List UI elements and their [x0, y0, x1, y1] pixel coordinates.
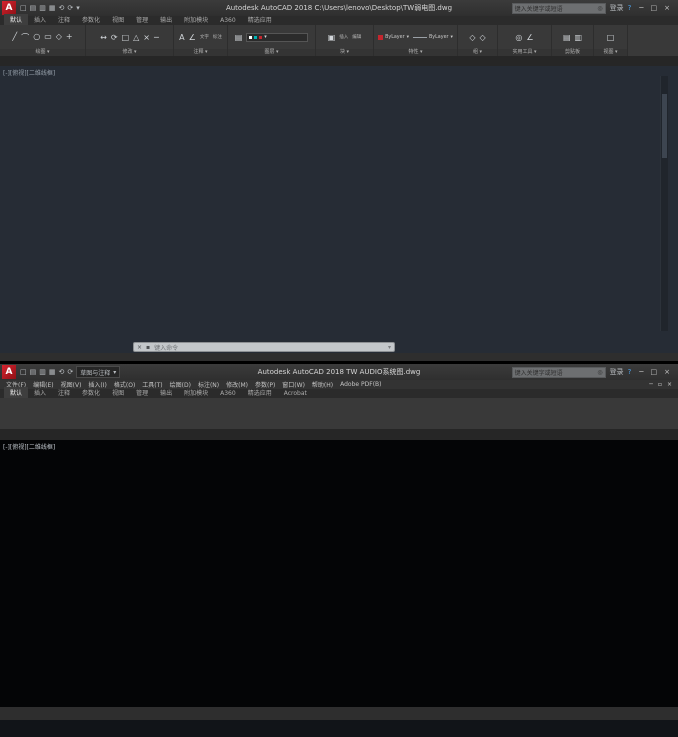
property-dropdown[interactable]: ByLayer▾: [378, 35, 409, 40]
tool-icon[interactable]: ◎: [515, 33, 522, 42]
desktop: { "colors":{"accent_red":"#c4262e","wire…: [0, 0, 678, 737]
help-icon[interactable]: ?: [628, 4, 632, 12]
panel-label[interactable]: 绘图 ▾: [0, 49, 85, 56]
property-dropdown[interactable]: ByLayer▾: [413, 35, 453, 40]
tool-icon[interactable]: ▤: [563, 33, 571, 42]
ribbon-tab-注释[interactable]: 注释: [52, 387, 76, 398]
plot-icon[interactable]: ▦: [49, 4, 56, 12]
ribbon-panel-组: ◇◇组 ▾: [458, 25, 498, 56]
panel-label[interactable]: 图层 ▾: [228, 49, 315, 56]
panel-label[interactable]: 注释 ▾: [174, 49, 227, 56]
quick-access-toolbar: □▤▥▦⟲⟳▾: [20, 4, 80, 12]
ribbon-tab-管理[interactable]: 管理: [130, 14, 154, 25]
window-title: Autodesk AutoCAD 2018 C:\Users\lenovo\De…: [226, 3, 452, 13]
model-space-canvas[interactable]: [0, 66, 678, 353]
tool-icon[interactable]: ∠: [189, 33, 196, 42]
viewport-controls[interactable]: [-][俯视][二维线框]: [3, 442, 55, 451]
panel-tools: ◇◇: [458, 25, 497, 49]
panel-tools: ╱⌒○▭◇+: [0, 25, 85, 49]
search-icon[interactable]: ◎: [597, 369, 602, 376]
doc-restore-button[interactable]: ▫: [658, 381, 662, 388]
panel-tools: ◎∠: [498, 25, 551, 49]
search-input[interactable]: 键入关键字或短语 ◎: [512, 3, 606, 14]
menu-item[interactable]: Adobe PDF(B): [340, 381, 381, 388]
tool-icon[interactable]: ▣: [328, 33, 336, 42]
ribbon-tab-管理[interactable]: 管理: [130, 387, 154, 398]
window-title: Autodesk AutoCAD 2018 TW AUDIO系统图.dwg: [258, 367, 421, 377]
help-icon[interactable]: ?: [628, 368, 632, 376]
panel-label[interactable]: 修改 ▾: [86, 49, 173, 56]
color-swatch: [378, 35, 383, 40]
panel-tools: ▣插入编辑: [316, 25, 373, 49]
doc-close-button[interactable]: ×: [667, 381, 672, 388]
search-input[interactable]: 键入关键字或短语 ◎: [512, 367, 606, 378]
doc-minimize-button[interactable]: ─: [649, 381, 653, 388]
command-customize-icon[interactable]: ▪: [146, 344, 150, 351]
infocenter: 键入关键字或短语 ◎ 登录 ? ─□×: [512, 3, 678, 14]
model-space-canvas[interactable]: [0, 440, 678, 707]
ribbon-tab-插入[interactable]: 插入: [28, 14, 52, 25]
undo-icon[interactable]: ⟲: [59, 4, 65, 12]
panel-tools: A∠文字标注: [174, 25, 227, 49]
chevron-down-icon: ▾: [264, 34, 267, 40]
taskbar-strip: [0, 720, 678, 737]
tool-icon[interactable]: ∠: [526, 33, 533, 42]
ribbon-panel-视图: □视图 ▾: [594, 25, 628, 56]
tool-icon[interactable]: +: [66, 32, 73, 43]
command-line[interactable]: × ▪ 键入命令 ▾: [133, 342, 395, 352]
maximize-button[interactable]: □: [651, 368, 658, 376]
document-window-buttons: ─▫×: [649, 381, 678, 388]
tool-icon[interactable]: ×: [143, 33, 150, 42]
ribbon-tab-参数化[interactable]: 参数化: [76, 14, 106, 25]
panel-label[interactable]: 剪贴板: [552, 49, 593, 56]
ribbon-panel-注释: A∠文字标注注释 ▾: [174, 25, 228, 56]
new-file-icon[interactable]: □: [20, 4, 27, 12]
ribbon-panel-剪贴板: ▤▥剪贴板: [552, 25, 594, 56]
ribbon-tab-视图[interactable]: 视图: [106, 387, 130, 398]
chevron-down-icon: ▾: [407, 35, 409, 40]
ribbon-tab-bar: 默认插入注释参数化视图管理输出附加模块A360精选应用: [0, 16, 678, 25]
tool-icon[interactable]: ╱: [12, 32, 17, 43]
panel-label[interactable]: 视图 ▾: [594, 49, 627, 56]
panel-label[interactable]: 组 ▾: [458, 49, 497, 56]
ribbon-panel-图层: ▤▾图层 ▾: [228, 25, 316, 56]
command-close-icon[interactable]: ×: [137, 344, 142, 351]
tool-icon[interactable]: ⟳: [111, 33, 118, 42]
ribbon-tab-插入[interactable]: 插入: [28, 387, 52, 398]
autocad-window-bottom: A □▤▥▦⟲⟳ 草图与注释 ▾ Autodesk AutoCAD 2018 T…: [0, 361, 678, 737]
ribbon-tab-参数化[interactable]: 参数化: [76, 387, 106, 398]
open-file-icon[interactable]: ▤: [30, 4, 37, 12]
ribbon-tab-精选应用[interactable]: 精选应用: [242, 14, 278, 25]
ribbon-panel-绘图: ╱⌒○▭◇+绘图 ▾: [0, 25, 86, 56]
infocenter: 键入关键字或短语 ◎ 登录 ? ─□×: [512, 367, 678, 378]
save-icon[interactable]: ▥: [39, 368, 46, 376]
ribbon-tab-A360[interactable]: A360: [214, 389, 242, 398]
tool-icon[interactable]: ◇: [469, 33, 475, 42]
ribbon-tab-附加模块[interactable]: 附加模块: [178, 387, 214, 398]
layer-combo[interactable]: ▾: [246, 33, 308, 42]
signin-label[interactable]: 登录: [610, 3, 624, 13]
window-buttons: ─□×: [635, 368, 674, 376]
ribbon-tab-默认[interactable]: 默认: [4, 14, 28, 25]
layer-color-chip: [249, 36, 252, 39]
panel-label[interactable]: 实用工具 ▾: [498, 49, 551, 56]
drawing-area[interactable]: [-][俯视][二维线框] × ▪ 键入命令 ▾: [0, 66, 678, 353]
maximize-button[interactable]: □: [651, 4, 658, 12]
workspace-switcher[interactable]: 草图与注释 ▾: [76, 366, 120, 378]
ribbon-tab-输出[interactable]: 输出: [154, 387, 178, 398]
minimize-button[interactable]: ─: [639, 4, 643, 12]
tool-icon[interactable]: ↔: [100, 33, 107, 42]
menu-item[interactable]: 窗口(W): [282, 380, 305, 389]
search-icon[interactable]: ◎: [597, 5, 602, 12]
drawing-area[interactable]: [-][俯视][二维线框]: [0, 440, 678, 707]
ribbon-panel-实用工具: ◎∠实用工具 ▾: [498, 25, 552, 56]
undo-icon[interactable]: ⟲: [59, 368, 65, 376]
tool-icon[interactable]: ─: [154, 33, 159, 42]
redo-icon[interactable]: ⟳: [67, 4, 73, 12]
tool-icon[interactable]: ▥: [575, 33, 583, 42]
tool-label[interactable]: 编辑: [352, 34, 361, 40]
ribbon: [0, 398, 678, 429]
tool-icon[interactable]: ▤: [235, 33, 243, 42]
status-bar: [0, 353, 678, 361]
tool-label[interactable]: 文字: [200, 34, 209, 40]
ribbon-tab-精选应用[interactable]: 精选应用: [242, 387, 278, 398]
panel-tools: ▤▾: [228, 25, 315, 49]
vertical-scrollbar[interactable]: [660, 76, 668, 331]
tool-icon[interactable]: □: [607, 33, 615, 42]
close-button[interactable]: ×: [664, 368, 670, 376]
bylayer-value: ByLayer: [385, 35, 405, 40]
linetype-sample: [413, 37, 427, 38]
tool-icon[interactable]: ⌒: [21, 32, 29, 43]
new-file-icon[interactable]: □: [20, 368, 27, 376]
ribbon: ╱⌒○▭◇+绘图 ▾↔⟳□△×─修改 ▾A∠文字标注注释 ▾▤▾图层 ▾▣插入编…: [0, 25, 678, 56]
plot-icon[interactable]: ▦: [49, 368, 56, 376]
autocad-logo-icon[interactable]: A: [2, 1, 16, 15]
chevron-down-icon: ▾: [113, 369, 116, 376]
viewport-controls[interactable]: [-][俯视][二维线框]: [3, 68, 55, 77]
close-button[interactable]: ×: [664, 4, 670, 12]
file-tab-bar: [0, 56, 678, 66]
menu-item[interactable]: 帮助(H): [312, 380, 333, 389]
ribbon-tab-bar: 默认插入注释参数化视图管理输出附加模块A360精选应用Acrobat: [0, 389, 678, 398]
bylayer-value: ByLayer: [429, 35, 449, 40]
ribbon-panel-特性: ByLayer▾ByLayer▾特性 ▾: [374, 25, 458, 56]
titlebar[interactable]: A □▤▥▦⟲⟳ 草图与注释 ▾ Autodesk AutoCAD 2018 T…: [0, 364, 678, 380]
tool-label[interactable]: 标注: [213, 34, 222, 40]
command-history-icon[interactable]: ▾: [388, 344, 391, 351]
ribbon-tab-注释[interactable]: 注释: [52, 14, 76, 25]
tool-icon[interactable]: A: [179, 33, 184, 42]
ribbon-panel-块: ▣插入编辑块 ▾: [316, 25, 374, 56]
layer-color-chip: [259, 36, 262, 39]
tool-icon[interactable]: △: [133, 33, 139, 42]
autocad-logo-icon[interactable]: A: [2, 365, 16, 379]
ribbon-tab-Acrobat[interactable]: Acrobat: [278, 389, 313, 398]
save-icon[interactable]: ▥: [39, 4, 46, 12]
ribbon-panel-修改: ↔⟳□△×─修改 ▾: [86, 25, 174, 56]
ribbon-tab-输出[interactable]: 输出: [154, 14, 178, 25]
ribbon-tab-视图[interactable]: 视图: [106, 14, 130, 25]
quick-access-toolbar: □▤▥▦⟲⟳: [20, 368, 73, 376]
status-bar: [0, 707, 678, 720]
tool-label[interactable]: 插入: [339, 34, 348, 40]
panel-tools: □: [594, 25, 627, 49]
minimize-button[interactable]: ─: [639, 368, 643, 376]
ribbon-tab-默认[interactable]: 默认: [4, 387, 28, 398]
signin-label[interactable]: 登录: [610, 367, 624, 377]
tool-icon[interactable]: ◇: [56, 32, 62, 43]
panel-tools: ▤▥: [552, 25, 593, 49]
chevron-down-icon: ▾: [451, 35, 453, 40]
tool-icon[interactable]: □: [122, 33, 130, 42]
layer-color-chip: [254, 36, 257, 39]
ribbon-tab-附加模块[interactable]: 附加模块: [178, 14, 214, 25]
panel-label[interactable]: 块 ▾: [316, 49, 373, 56]
tool-icon[interactable]: ◇: [480, 33, 486, 42]
file-tab-bar: [0, 429, 678, 440]
autocad-window-top: A □▤▥▦⟲⟳▾ Autodesk AutoCAD 2018 C:\Users…: [0, 0, 678, 361]
window-buttons: ─□×: [635, 4, 674, 12]
qat-dropdown-icon[interactable]: ▾: [76, 4, 80, 12]
tool-icon[interactable]: ○: [33, 32, 40, 43]
redo-icon[interactable]: ⟳: [67, 368, 73, 376]
panel-label[interactable]: 特性 ▾: [374, 49, 457, 56]
panel-tools: ByLayer▾ByLayer▾: [374, 25, 457, 49]
panel-tools: ↔⟳□△×─: [86, 25, 173, 49]
tool-icon[interactable]: ▭: [44, 32, 52, 43]
open-file-icon[interactable]: ▤: [30, 368, 37, 376]
command-prompt: 键入命令: [154, 343, 178, 352]
ribbon-tab-A360[interactable]: A360: [214, 16, 242, 25]
